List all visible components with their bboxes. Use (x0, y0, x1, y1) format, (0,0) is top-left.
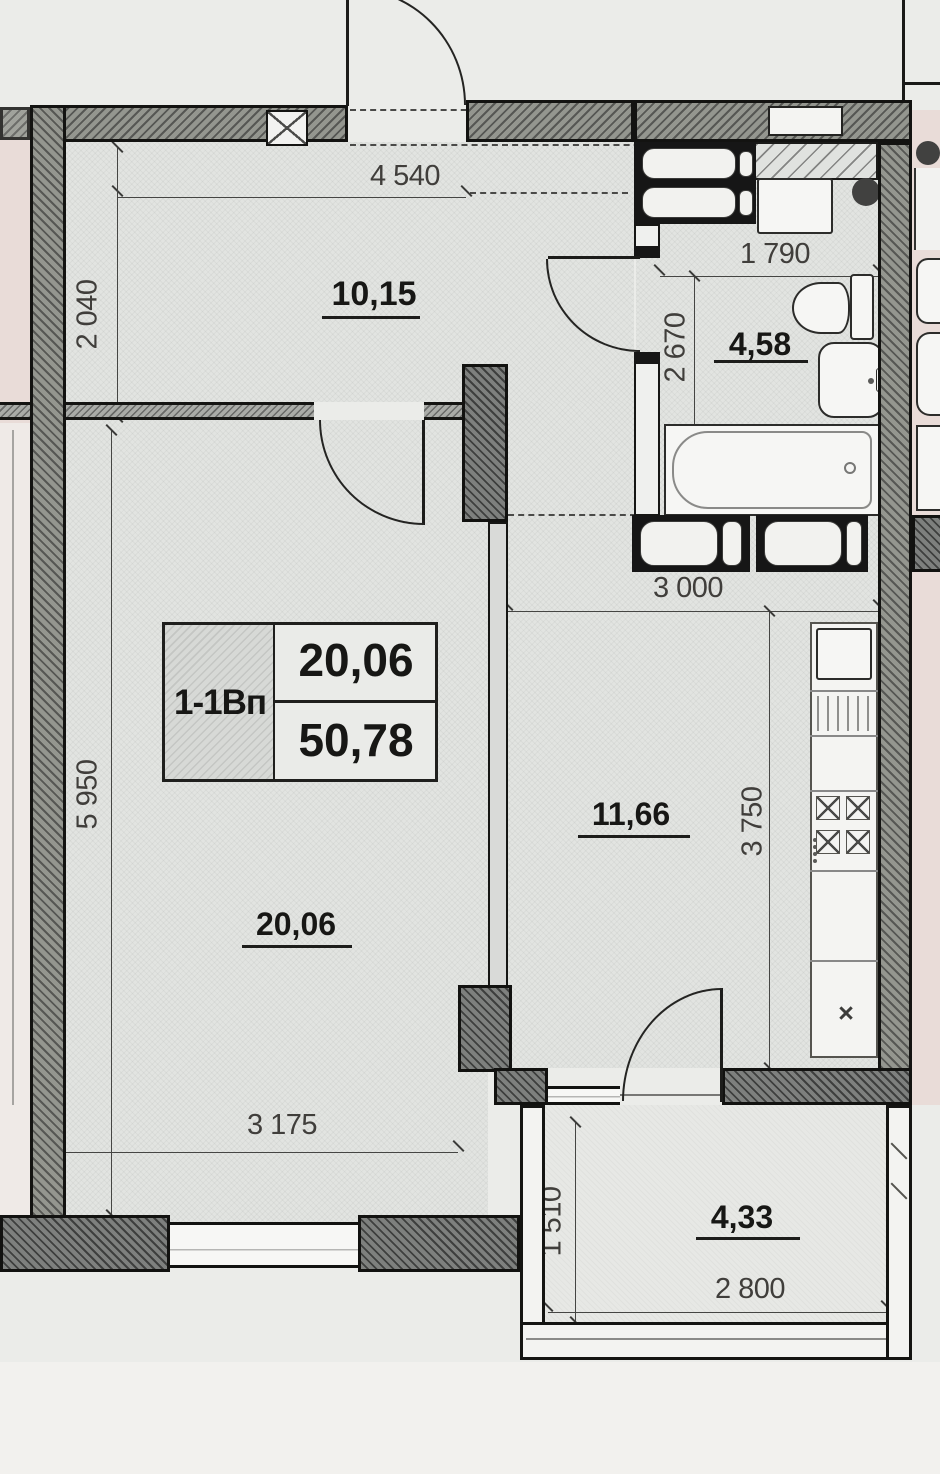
neighbor-left-wall-line (12, 430, 14, 1105)
area-bathroom: 4,58 (708, 326, 812, 362)
area-hall-underline (322, 316, 420, 319)
stove-burner-icon (846, 796, 870, 820)
vent-duct-icon (739, 190, 753, 216)
door-jamb (634, 352, 660, 364)
unit-code: 1-1Вп (167, 683, 273, 722)
neighbor-sink-fragment (916, 332, 940, 416)
entry-door-swing-icon (349, 0, 466, 105)
stove-knob-dot (813, 838, 817, 842)
dim-line-kitchen-width (508, 611, 878, 612)
wall-niche (768, 106, 843, 136)
vent-duct-icon (640, 521, 718, 566)
balcony-glazing-line (526, 1338, 906, 1340)
entry-threshold-dash-lower (350, 144, 660, 146)
stove-knob-dot (813, 845, 817, 849)
counter-divider (810, 960, 878, 962)
fridge-icon (816, 628, 872, 680)
vent-shaft-bath-right (756, 515, 868, 572)
room-hall-corridor (508, 402, 636, 515)
vent-shaft-bath-left (632, 515, 750, 572)
stove-knob-dot (813, 852, 817, 856)
dim-line-living-window (55, 1152, 458, 1153)
wall-living-kitchen-partition (488, 522, 508, 988)
wall-left-outer (30, 105, 66, 1270)
dim-living-depth: 5 950 (72, 725, 105, 865)
wall-hall-bottom-right (424, 402, 462, 420)
paper-bottom (0, 1362, 940, 1474)
toilet-tank-icon (850, 274, 874, 340)
dim-line-hall-width (118, 197, 466, 198)
sink-drain-dot (868, 378, 874, 384)
stove-burner-icon (816, 830, 840, 854)
vent-duct-icon (764, 521, 842, 566)
neighbor-left-lower (0, 423, 30, 1270)
floor-plan: 4 540 2 040 1 790 2 670 3 000 3 750 5 95… (0, 0, 940, 1474)
wall-hall-bottom-left (66, 402, 314, 420)
wall-balcony-top-left (494, 1068, 548, 1105)
pillar-living-kitchen-lower (458, 985, 512, 1072)
neighbor-vent-wall-fragment (912, 515, 940, 572)
stove-knob-dot (813, 859, 817, 863)
wall-hall-bottom-stub (0, 402, 30, 420)
vent-duct-icon (642, 187, 736, 218)
kitchen-zone-dash (508, 514, 636, 516)
counter-divider (810, 870, 878, 872)
dim-kitchen-width: 3 000 (613, 572, 763, 605)
area-living: 20,06 (242, 906, 350, 942)
counter-divider (810, 690, 878, 692)
boiler-icon: × (832, 998, 860, 1028)
neighbor-left-upper (0, 140, 30, 423)
wall-living-bottom-right (358, 1215, 520, 1272)
sink-icon (818, 342, 884, 418)
stove-burner-icon (816, 796, 840, 820)
wall-bath-partition-lower (634, 352, 660, 516)
neighbor-counter-fragment (914, 168, 940, 250)
dim-kitchen-depth: 3 750 (737, 752, 770, 892)
wall-living-bottom-left (0, 1215, 170, 1272)
area-living-underline (242, 945, 352, 948)
sink-drainer-icon (817, 696, 873, 731)
wall-vent-icon (266, 110, 308, 146)
area-kitchen: 11,66 (578, 796, 684, 832)
dim-bath-depth: 2 670 (660, 278, 693, 418)
washing-machine-icon (757, 178, 833, 234)
area-hall: 10,15 (312, 276, 436, 312)
window-living (170, 1222, 358, 1268)
dim-bath-width: 1 790 (700, 238, 850, 271)
wall-top-entry-right (466, 100, 634, 142)
unit-box-divider (275, 700, 435, 703)
balcony-wall-bottom (520, 1322, 912, 1360)
bathtub-drain-icon (844, 462, 856, 474)
dim-line-hall-depth (117, 147, 118, 417)
vestibule-zone-dash (470, 192, 628, 194)
wall-balcony-top-right (722, 1068, 912, 1105)
pillar-hall-kitchen (462, 364, 508, 522)
vent-shaft-top (634, 142, 756, 224)
dim-hall-depth: 2 040 (72, 245, 105, 385)
dim-balcony-width: 2 800 (675, 1273, 825, 1306)
vent-duct-icon (739, 151, 753, 177)
area-balcony-underline (696, 1237, 800, 1240)
area-kitchen-underline (578, 835, 690, 838)
bathtub-inner-icon (672, 431, 872, 509)
vent-duct-icon (722, 521, 742, 566)
neighbor-vent-hole-icon (916, 141, 940, 165)
dim-hall-width: 4 540 (330, 160, 480, 193)
dim-line-balcony-depth (575, 1122, 576, 1322)
counter-divider (810, 790, 878, 792)
vent-duct-icon (846, 521, 862, 566)
neighbor-toilet-fragment (916, 258, 940, 324)
neighbor-top-wall-line (902, 0, 905, 110)
wall-top-left-stub (0, 107, 30, 140)
area-balcony: 4,33 (690, 1199, 794, 1235)
duct-zone (740, 142, 878, 180)
dim-line-balcony-width (548, 1312, 886, 1313)
window-balcony-door-block (548, 1086, 620, 1105)
wall-right-outer (878, 142, 912, 1105)
neighbor-top-wall-line2 (902, 82, 940, 85)
vent-hole-icon (852, 178, 880, 206)
area-bathroom-underline (714, 360, 808, 363)
dim-living-window: 3 175 (207, 1109, 357, 1142)
counter-divider (810, 735, 878, 737)
unit-info-box: 1-1Вп 20,06 50,78 (162, 622, 438, 782)
dim-line-living-depth (111, 430, 112, 1215)
neighbor-bathtub-fragment (916, 425, 940, 511)
stove-burner-icon (846, 830, 870, 854)
unit-total-area: 50,78 (277, 715, 435, 765)
room-living (66, 420, 488, 1222)
unit-living-area: 20,06 (277, 635, 435, 685)
vent-duct-icon (642, 148, 736, 179)
